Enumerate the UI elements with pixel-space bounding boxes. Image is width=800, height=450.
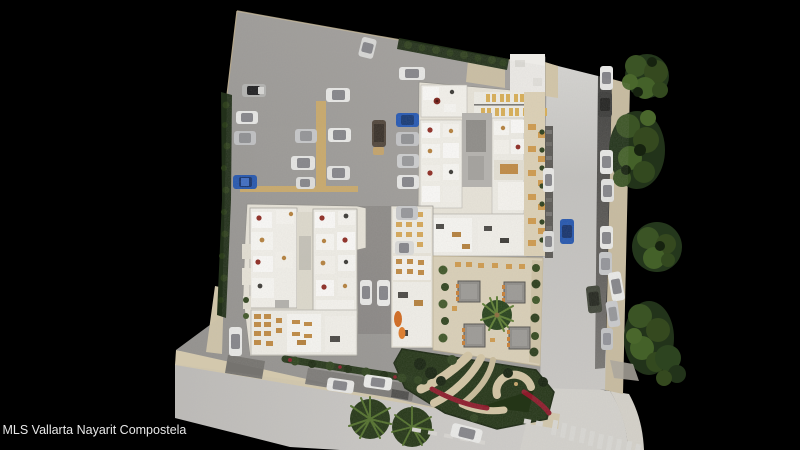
svg-text:MLS Vallarta Nayarit Compostel: MLS Vallarta Nayarit Compostela xyxy=(3,423,187,437)
